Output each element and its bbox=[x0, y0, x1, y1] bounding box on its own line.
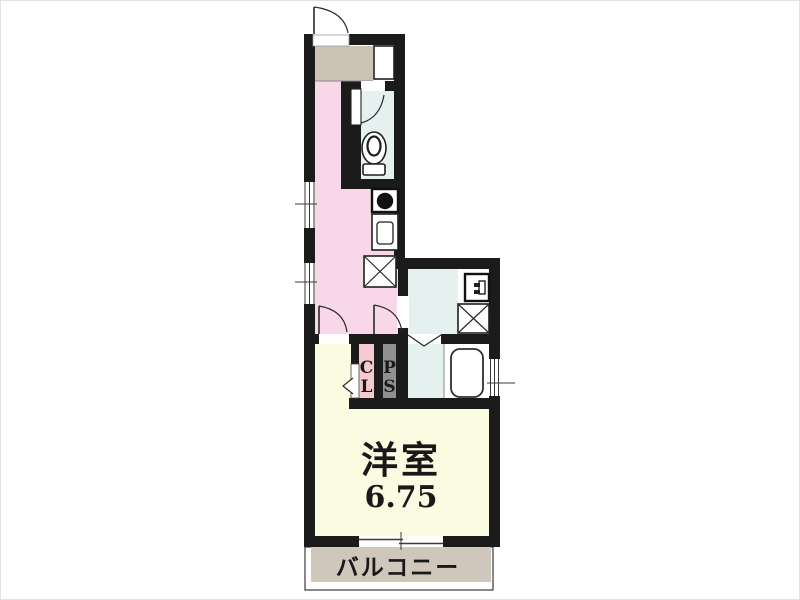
refrigerator-space-icon bbox=[364, 256, 396, 287]
balcony-label: バルコニー bbox=[336, 554, 461, 581]
pipe-space-label-p: P bbox=[383, 358, 396, 378]
western-room-area: 6.75 bbox=[364, 480, 437, 515]
closet-label-c: C bbox=[360, 358, 374, 378]
bathtub-icon bbox=[451, 349, 483, 397]
room-washroom bbox=[408, 269, 461, 334]
western-room-label: 洋室 bbox=[361, 438, 441, 482]
entrance-door-icon bbox=[313, 7, 349, 46]
window-bathroom-icon bbox=[487, 359, 515, 396]
vanity-basin-icon bbox=[465, 274, 489, 301]
pipe-space-label-s: S bbox=[383, 377, 395, 397]
toilet-icon bbox=[362, 132, 386, 175]
room-entry-genkan bbox=[315, 46, 373, 81]
floorplan-drawing: 洋室 6.75 バルコニー C L P S bbox=[1, 1, 799, 599]
room-bathroom bbox=[408, 344, 444, 398]
window-left-lower-icon bbox=[295, 263, 317, 304]
washer-space-icon bbox=[458, 304, 489, 333]
floorplan-page: 洋室 6.75 バルコニー C L P S bbox=[0, 0, 800, 600]
window-left-upper-icon bbox=[295, 182, 317, 228]
closet-label-l: L bbox=[361, 377, 373, 397]
stove-burner-icon bbox=[372, 189, 398, 212]
shoe-cabinet-icon bbox=[374, 46, 394, 79]
kitchen-sink-icon bbox=[372, 214, 398, 250]
